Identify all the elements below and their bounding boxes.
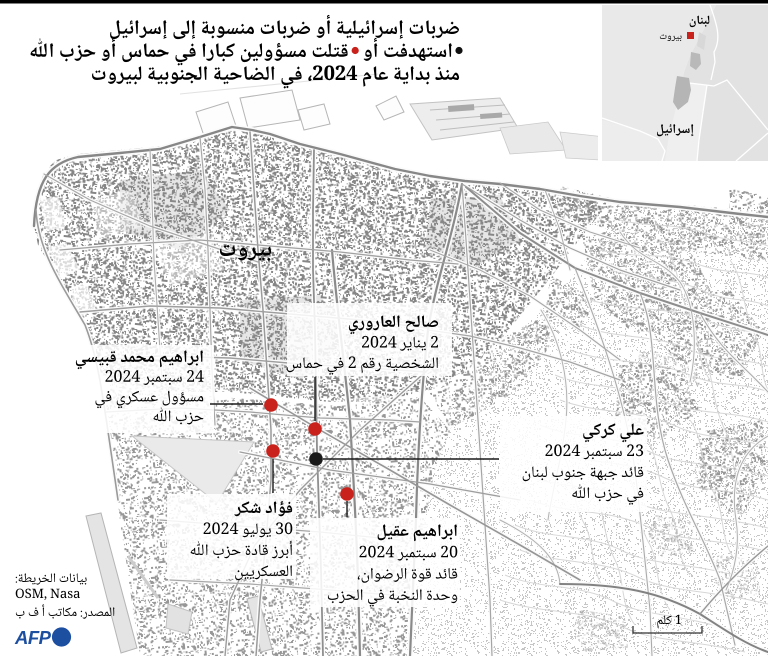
- svg-text:AFP: AFP: [14, 627, 52, 648]
